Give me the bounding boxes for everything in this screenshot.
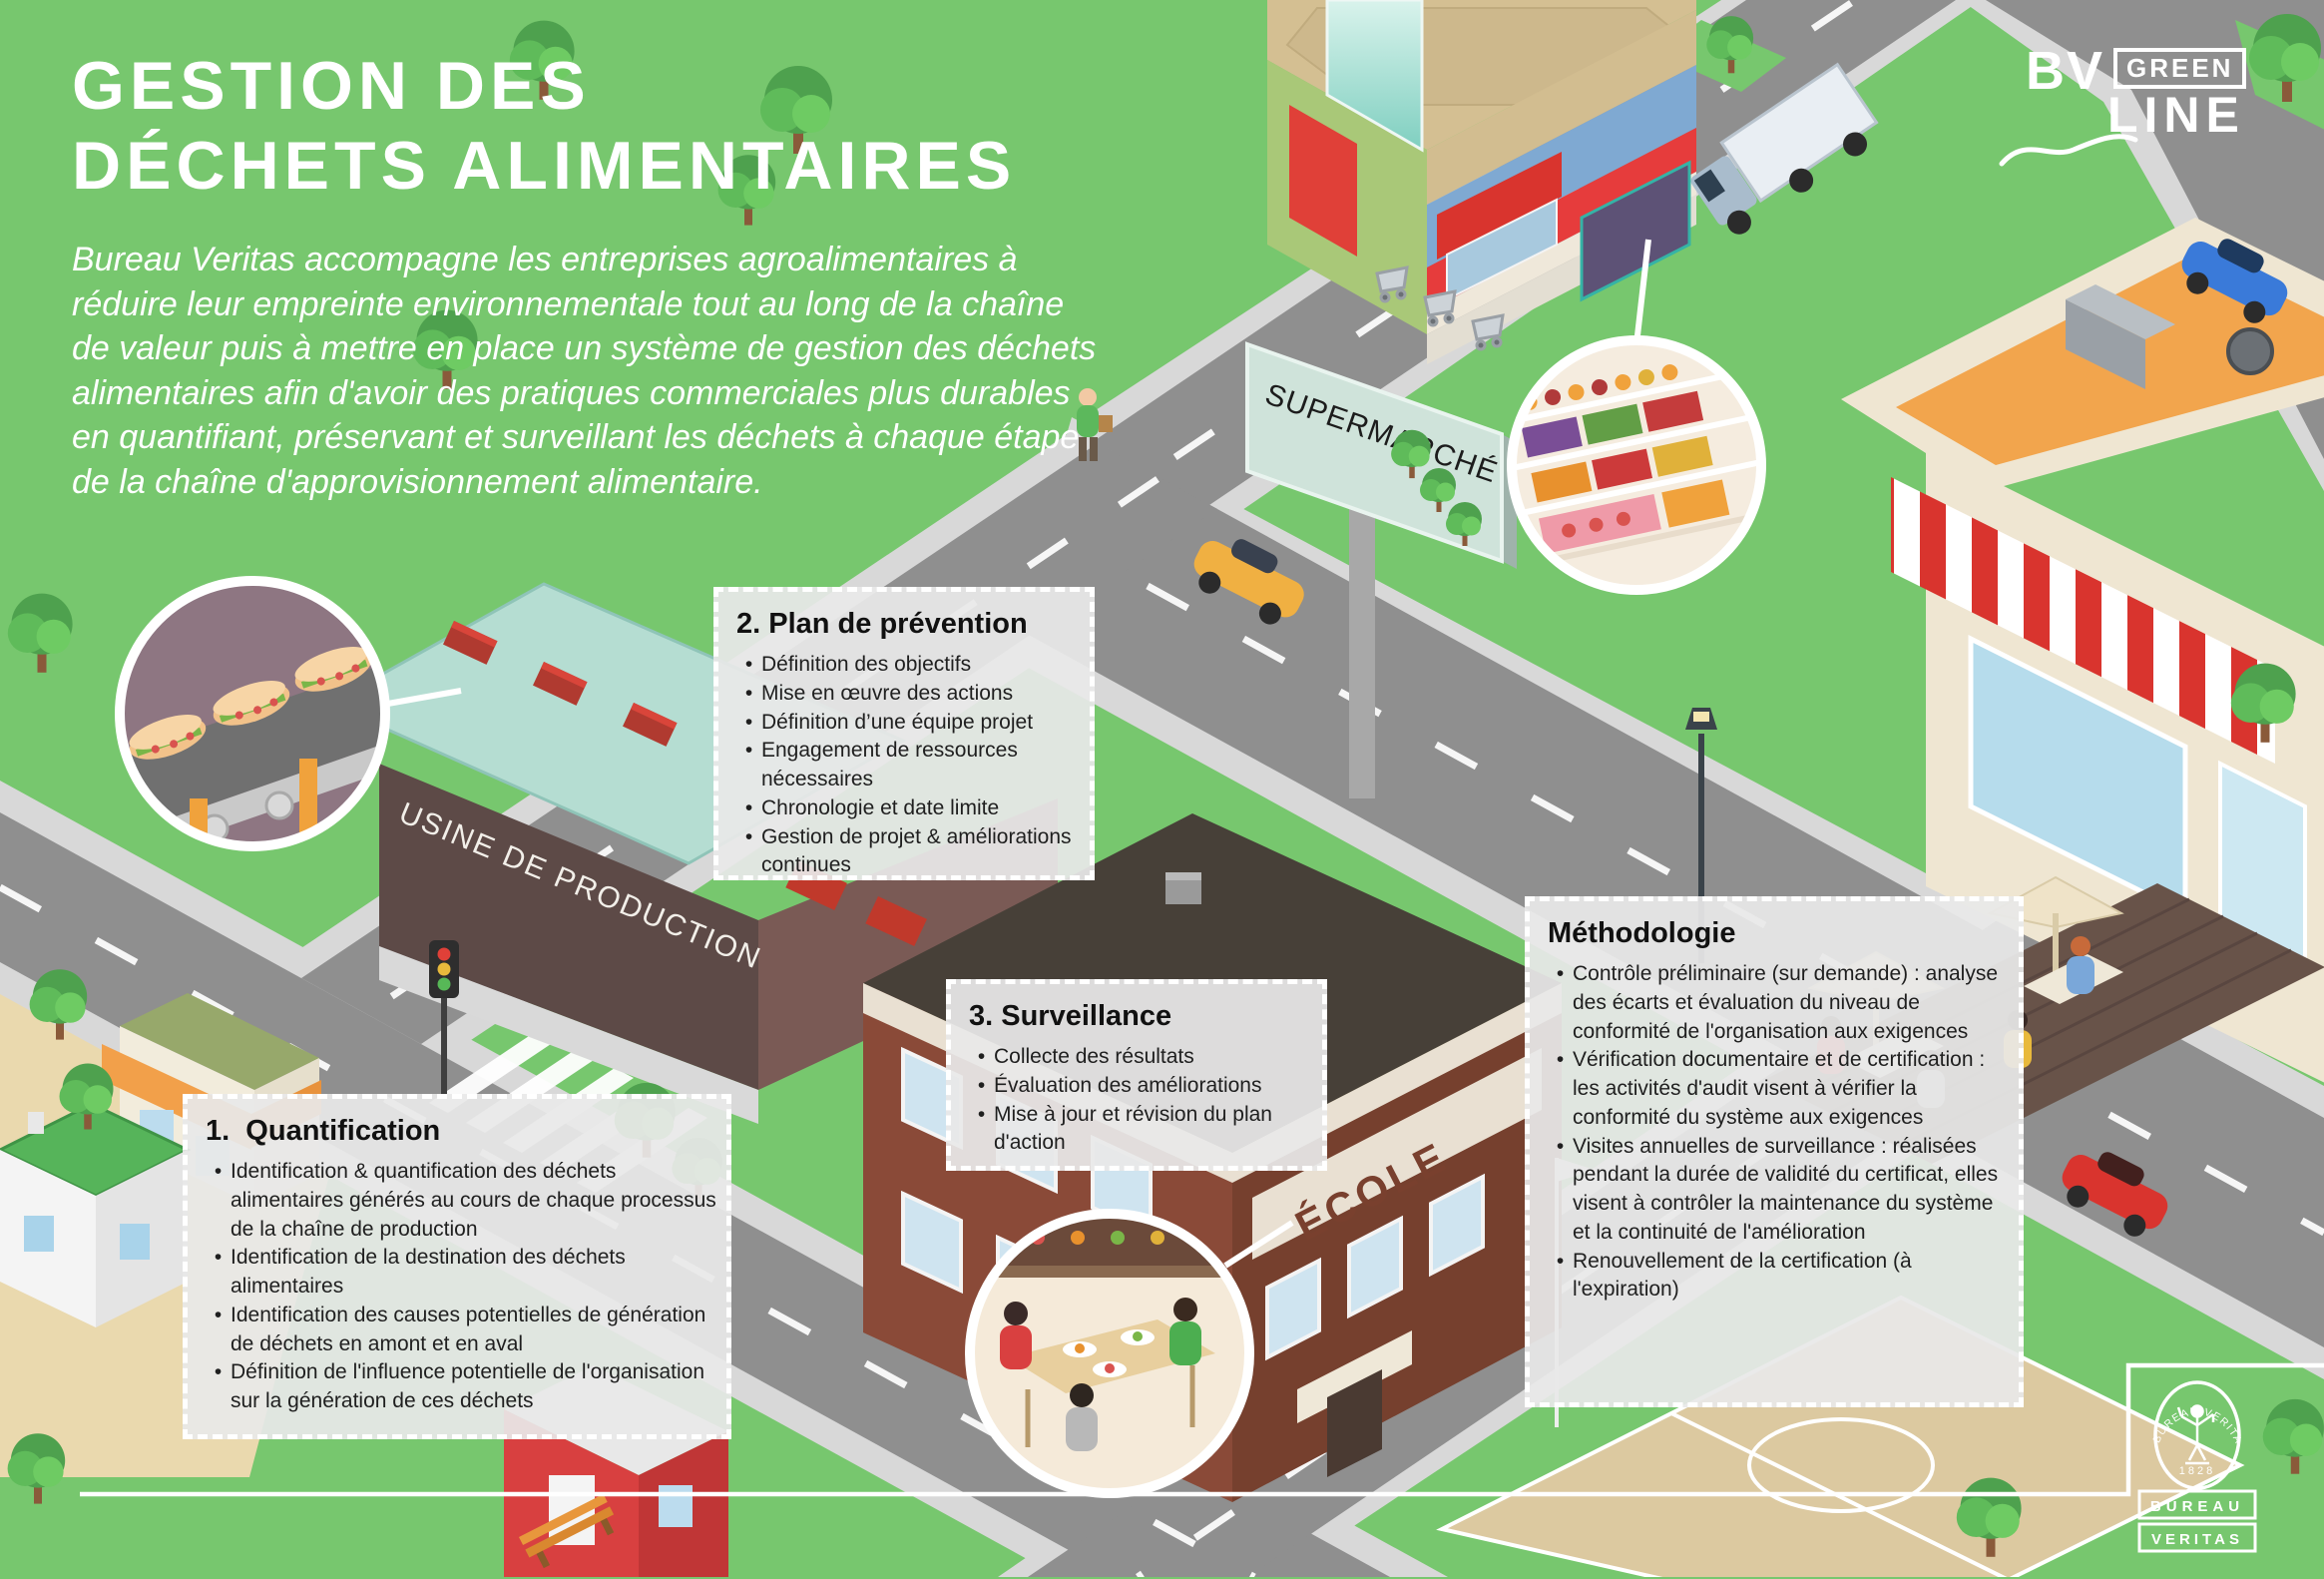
veritas-text: VERITAS — [2151, 1531, 2243, 1548]
cafe-person-blue — [2067, 936, 2094, 994]
bullet-item: •Visites annuelles de surveillance : réa… — [1548, 1133, 2009, 1248]
bureau-veritas-logo: BUREAU VERITAS 1828 BUREAU VERITAS — [2135, 1369, 2315, 1579]
green-badge: GREEN — [2113, 48, 2246, 89]
page-title-line1: GESTION DES — [72, 46, 1016, 126]
bullet-item: •Collecte des résultats — [969, 1043, 1312, 1072]
surveillance-list: •Collecte des résultats •Évaluation des … — [969, 1043, 1312, 1158]
house-building — [0, 1104, 188, 1327]
bullet-item: •Renouvellement de la certification (à l… — [1548, 1248, 2009, 1306]
methodologie-box: Méthodologie •Contrôle préliminaire (sur… — [1525, 896, 2024, 1407]
prevention-box: 2. Plan de prévention •Définition des ob… — [713, 587, 1095, 880]
bullet-item: •Mise en œuvre des actions — [736, 680, 1080, 709]
bullet-item: •Évaluation des améliorations — [969, 1072, 1312, 1101]
page-title: GESTION DES DÉCHETS ALIMENTAIRES — [72, 46, 1016, 206]
bullet-item: •Définition de l'influence potentielle d… — [206, 1358, 716, 1416]
bullet-item: •Gestion de projet & améliorations conti… — [736, 823, 1080, 881]
prevention-title: 2. Plan de prévention — [736, 608, 1080, 641]
prevention-list: •Définition des objectifs •Mise en œuvre… — [736, 651, 1080, 880]
bullet-item: •Définition des objectifs — [736, 651, 1080, 680]
bullet-item: •Contrôle préliminaire (sur demande) : a… — [1548, 960, 2009, 1046]
methodologie-list: •Contrôle préliminaire (sur demande) : a… — [1548, 960, 2009, 1305]
quantification-box: 1. Quantification •Identification & quan… — [183, 1094, 731, 1439]
diner-red — [1000, 1302, 1032, 1369]
sign-pole — [1349, 469, 1375, 798]
bullet-item: •Chronologie et date limite — [736, 794, 1080, 823]
surveillance-title: 3. Surveillance — [969, 1000, 1312, 1033]
surveillance-box: 3. Surveillance •Collecte des résultats … — [946, 979, 1327, 1171]
bullet-item: •Vérification documentaire et de certifi… — [1548, 1046, 2009, 1132]
bullet-item: •Identification des causes potentielles … — [206, 1302, 716, 1359]
diner-gray — [1066, 1383, 1098, 1451]
wave-icon — [1996, 128, 2145, 174]
emblem-arc-text: BUREAU VERITAS — [2135, 1369, 2244, 1446]
quantification-title: 1. Quantification — [206, 1115, 716, 1148]
bureau-text: BUREAU — [2150, 1498, 2244, 1515]
bv-mark: BV — [2026, 40, 2104, 102]
diner-green — [1169, 1298, 1201, 1365]
emblem-year: 1828 — [2179, 1465, 2215, 1477]
bv-greenline-logo: BV GREEN LINE — [2004, 40, 2283, 160]
intro-paragraph: Bureau Veritas accompagne les entreprise… — [72, 238, 1110, 504]
bullet-item: •Définition d’une équipe projet — [736, 709, 1080, 738]
bullet-item: •Identification & quantification des déc… — [206, 1158, 716, 1244]
quantification-list: •Identification & quantification des déc… — [206, 1158, 716, 1416]
bullet-item: •Mise à jour et révision du plan d'actio… — [969, 1101, 1312, 1159]
bullet-item: •Identification de la destination des dé… — [206, 1244, 716, 1302]
methodologie-title: Méthodologie — [1548, 917, 2009, 950]
page-title-line2: DÉCHETS ALIMENTAIRES — [72, 126, 1016, 206]
bullet-item: •Engagement de ressources nécessaires — [736, 737, 1080, 794]
